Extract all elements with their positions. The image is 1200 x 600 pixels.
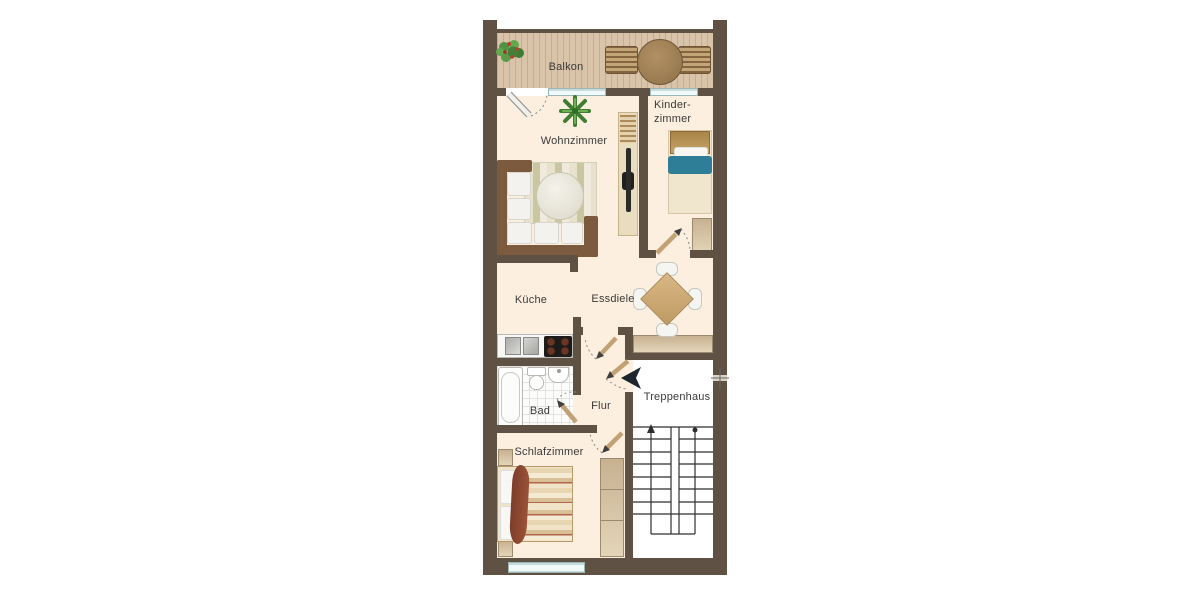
stairwell-floor	[633, 360, 713, 558]
wall-hall-top	[573, 327, 583, 335]
kitchen-sink	[523, 337, 539, 355]
wardrobe-divider	[600, 520, 624, 521]
room-label-kueche: Küche	[501, 294, 561, 307]
balcony-table	[637, 39, 683, 85]
wall-kitchen-hall	[573, 317, 581, 366]
wall-kitchen-return	[570, 255, 578, 272]
child-room-cabinet	[692, 218, 712, 254]
room-label-schlafzimmer: Schlafzimmer	[509, 446, 589, 459]
sofa-frame-right	[584, 216, 598, 257]
wall-top-segment	[497, 88, 506, 96]
room-label-flur: Flur	[581, 400, 621, 413]
kitchen-sink	[505, 337, 521, 355]
tv-cabinet-shelves	[620, 115, 636, 143]
wardrobe	[600, 458, 624, 557]
sofa-cushion	[507, 198, 531, 220]
floorplan-canvas: Balkon Wohnzimmer Kinder- zimmer Küche E…	[0, 0, 1200, 600]
room-label-wohnzimmer: Wohnzimmer	[534, 135, 614, 148]
balcony-railing	[497, 29, 713, 33]
wall-childroom-bottom	[690, 250, 713, 258]
room-label-kinderzimmer-line1: Kinder-	[654, 99, 704, 112]
wall-childroom-left	[639, 96, 648, 253]
room-label-bad: Bad	[520, 405, 560, 418]
wall-landing-bottom	[625, 353, 727, 360]
wall-livingroom-bottom	[483, 255, 578, 263]
bathtub-basin	[501, 372, 520, 423]
wall-bath-hall	[573, 366, 581, 395]
window-bedroom	[508, 562, 585, 573]
room-label-kinderzimmer-line2: zimmer	[654, 113, 704, 126]
wall-stairwell-left	[625, 392, 633, 558]
wall-right	[713, 20, 727, 575]
sofa-cushion	[561, 222, 583, 244]
wall-top-segment	[698, 88, 713, 96]
washbasin-tap	[557, 369, 561, 373]
wall-left	[483, 20, 497, 575]
toilet-bowl	[529, 375, 544, 390]
sofa-cushion	[507, 222, 532, 244]
coffee-table	[536, 172, 584, 220]
stairwell-landing	[633, 335, 713, 353]
child-bed-blanket	[668, 156, 712, 174]
room-label-essdiele: Essdiele	[583, 293, 643, 306]
sofa-frame-left	[497, 160, 507, 257]
room-label-treppenhaus: Treppenhaus	[637, 391, 717, 404]
sofa-cushion	[534, 222, 559, 244]
wall-bedroom-top	[483, 425, 597, 433]
sofa-cushion	[507, 172, 531, 196]
wardrobe-divider	[600, 489, 624, 490]
window-childroom	[650, 88, 698, 96]
balcony-chair-left	[605, 46, 638, 74]
tv-soundbar	[626, 148, 631, 212]
room-label-balkon: Balkon	[536, 61, 596, 74]
window-livingroom	[548, 88, 606, 96]
wall-childroom-bottom	[639, 250, 656, 258]
nightstand	[498, 540, 513, 557]
bed-duvet	[521, 505, 572, 540]
wall-kitchen-bath	[483, 358, 573, 366]
stove	[544, 336, 572, 357]
wall-top-segment	[606, 88, 650, 96]
